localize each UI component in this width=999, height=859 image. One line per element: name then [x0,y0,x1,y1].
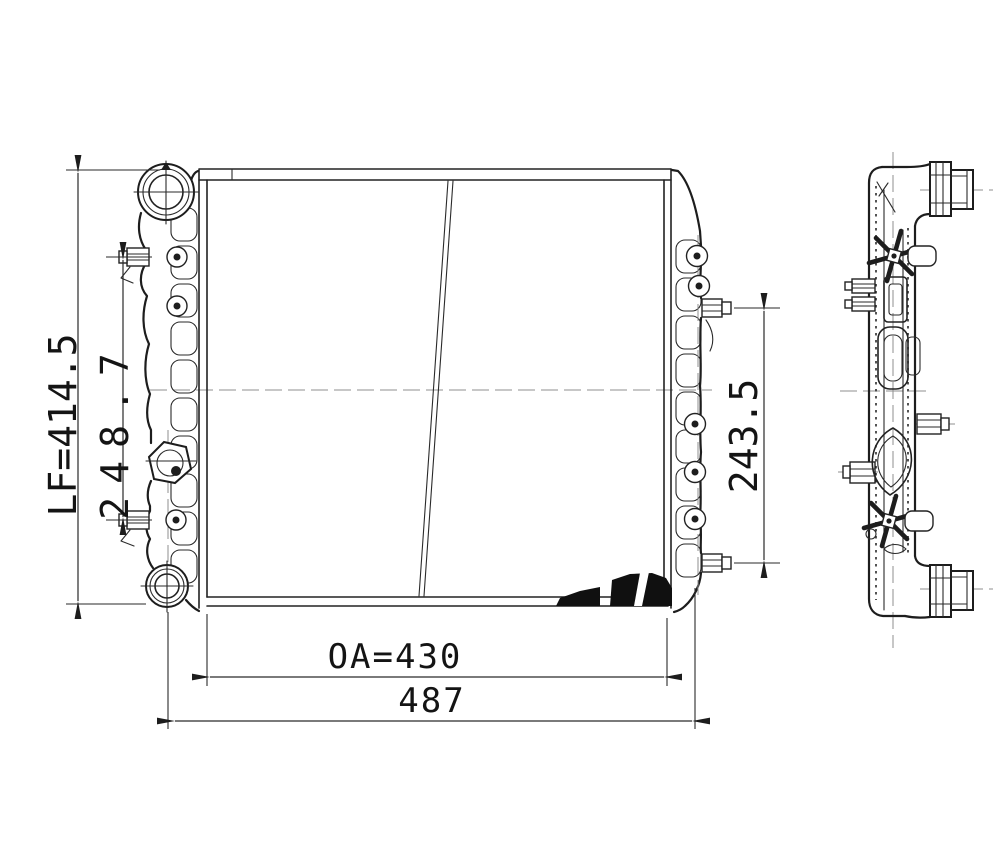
dimension-label-core-width: OA=430 [328,637,463,677]
right-boss-3-dot [692,421,699,428]
right-boss-4-dot [692,469,699,476]
left-lower-boss-dot [173,517,180,524]
bottom-hose-port [930,565,973,617]
dimension-label-overall-height: LF=414.5 [41,333,85,516]
dimension-label-overall-width: 487 [398,681,465,721]
dimension-label-left-connector-spacing: 248.7 [93,340,137,519]
right-boss-1-dot [694,253,701,260]
top-hose-port [930,162,973,216]
right-boss-5-dot [692,516,699,523]
right-lower-pin [702,554,731,572]
radiator-technical-drawing-page: LF=414.5 248.7 243.5 OA=430 487 [0,0,999,859]
right-boss-2-dot [696,283,703,290]
dimension-label-right-connector-spacing: 243.5 [722,379,766,493]
left-upper-boss-dot [174,254,181,261]
technical-drawing: LF=414.5 248.7 243.5 OA=430 487 [0,0,999,859]
left-mid-boss-dot [174,303,181,310]
